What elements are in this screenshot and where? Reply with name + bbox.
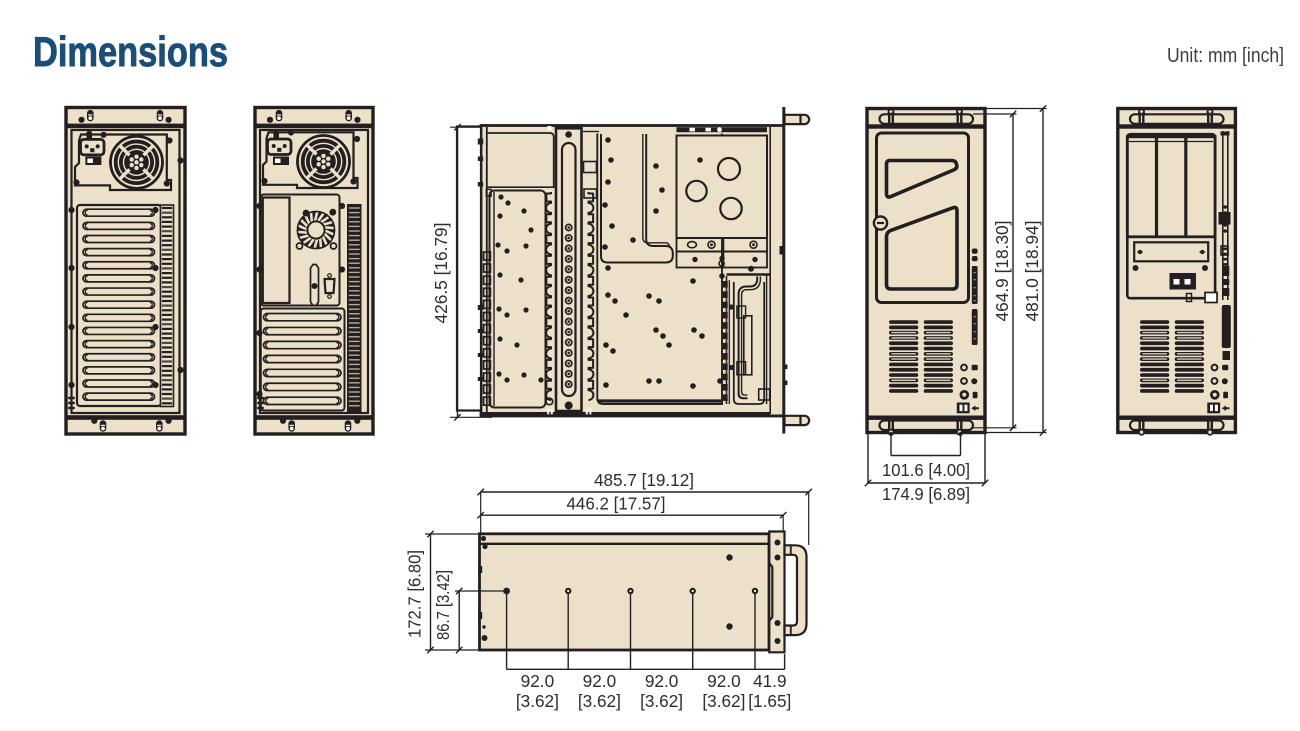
svg-text:[3.62]: [3.62] [578,691,621,711]
svg-text:101.6 [4.00]: 101.6 [4.00] [882,460,970,480]
svg-text:92.0: 92.0 [707,671,740,691]
svg-text:[3.62]: [3.62] [702,691,745,711]
svg-text:Dimensions: Dimensions [33,28,228,75]
svg-text:92.0: 92.0 [583,671,616,691]
svg-text:172.7 [6.80]: 172.7 [6.80] [405,550,425,638]
svg-text:464.9 [18.30]: 464.9 [18.30] [992,221,1012,322]
svg-text:174.9 [6.89]: 174.9 [6.89] [882,484,970,504]
svg-text:41.9: 41.9 [753,671,786,691]
svg-text:426.5 [16.79]: 426.5 [16.79] [431,223,451,324]
svg-text:[1.65]: [1.65] [748,691,791,711]
svg-text:446.2 [17.57]: 446.2 [17.57] [567,494,666,514]
svg-text:[3.62]: [3.62] [640,691,683,711]
svg-text:481.0 [18.94]: 481.0 [18.94] [1022,221,1042,322]
svg-text:485.7 [19.12]: 485.7 [19.12] [594,470,694,490]
svg-text:Unit: mm [inch]: Unit: mm [inch] [1167,44,1284,67]
svg-text:[3.62]: [3.62] [516,691,559,711]
svg-text:92.0: 92.0 [521,671,554,691]
svg-text:86.7 [3.42]: 86.7 [3.42] [433,570,453,640]
svg-text:92.0: 92.0 [645,671,678,691]
